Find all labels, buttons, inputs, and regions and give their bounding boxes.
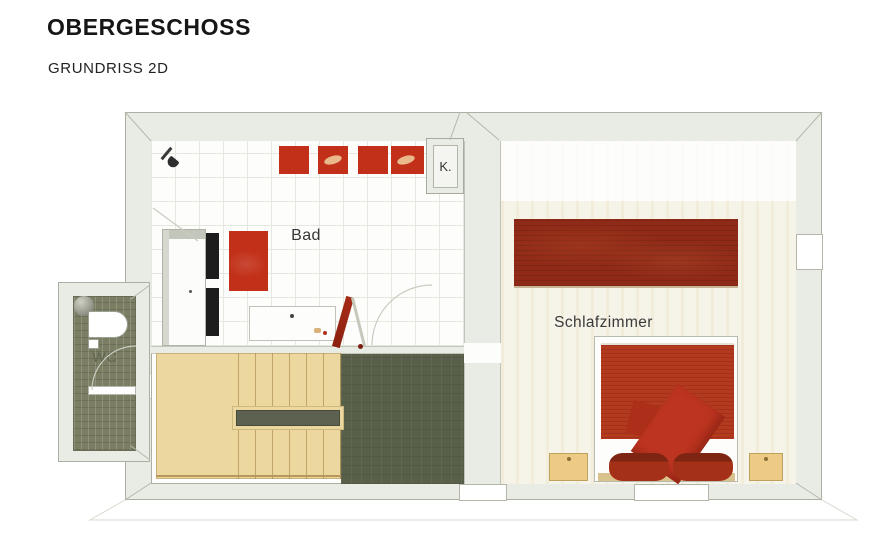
window-bottom-wall	[634, 484, 709, 501]
closet-room: K.	[426, 138, 464, 194]
stair-handrail	[232, 406, 344, 430]
bathtub-drain	[189, 290, 192, 293]
hallway-floor	[341, 353, 464, 484]
closet-label: K.	[439, 159, 451, 174]
bath-mat	[229, 231, 268, 291]
towel-tip	[358, 344, 363, 349]
towel-mat	[391, 146, 424, 174]
page-subtitle: GRUNDRISS 2D	[48, 60, 169, 77]
cistern	[88, 339, 99, 349]
shower-partition	[206, 288, 219, 336]
pillow	[673, 453, 733, 481]
bathtub-rim	[163, 230, 205, 239]
wc-room: WC	[58, 282, 150, 462]
wc-label: WC	[75, 349, 135, 365]
faucet	[290, 314, 294, 318]
washcloth	[323, 154, 343, 167]
towel-mat	[358, 146, 388, 174]
closet-floor: K.	[433, 145, 458, 188]
bathroom-label: Bad	[276, 227, 336, 245]
bedroom-label: Schlafzimmer	[516, 314, 691, 332]
towel-mat	[318, 146, 348, 174]
floor-plan: K. Bad Schlafzimmer	[125, 112, 822, 500]
towel-mat	[279, 146, 309, 174]
bathtub-rim	[163, 230, 169, 345]
ground-outline	[90, 500, 857, 520]
bathtub	[162, 229, 206, 346]
wc-door-leaf	[88, 386, 136, 395]
wall-bathroom-bedroom	[464, 141, 501, 484]
nightstand-knob	[567, 457, 571, 461]
stair-steps-upper	[238, 353, 341, 406]
shower-partition	[206, 233, 219, 279]
cosmetic-item	[323, 331, 327, 335]
nightstand	[749, 453, 783, 481]
window-right-wall	[796, 234, 823, 270]
washbasin	[249, 306, 336, 341]
toilet	[88, 311, 128, 338]
handrail-bar	[236, 410, 340, 426]
washcloth	[396, 154, 416, 167]
window-bottom-wall	[459, 484, 507, 501]
nightstand	[549, 453, 588, 481]
nightstand-knob	[764, 457, 768, 461]
stair-steps-lower	[238, 430, 341, 479]
pillow	[609, 453, 669, 481]
stair-edge	[156, 475, 341, 477]
door-opening-bedroom	[464, 343, 501, 363]
soap-dish	[314, 328, 321, 333]
wardrobe	[514, 219, 738, 288]
page-title: OBERGESCHOSS	[47, 14, 251, 41]
bedroom-ceiling-slope	[501, 141, 796, 201]
